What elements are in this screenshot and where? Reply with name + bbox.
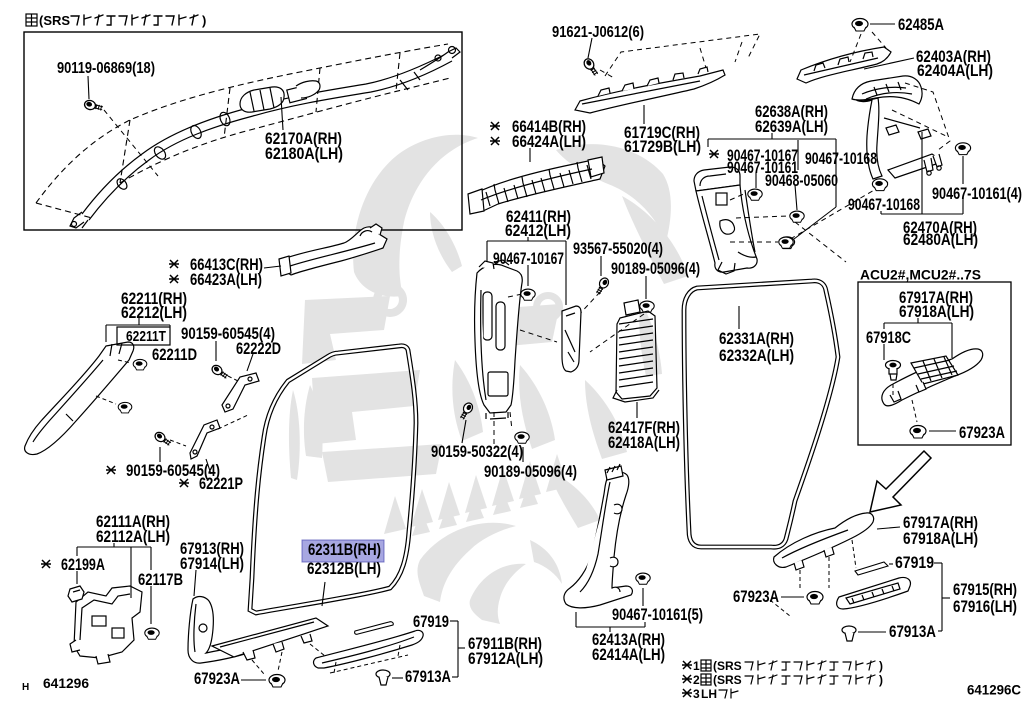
svg-text:(SRS: (SRS	[713, 659, 742, 673]
svg-text:67918C: 67918C	[866, 328, 911, 347]
svg-text:91621-J0612(6): 91621-J0612(6)	[552, 24, 644, 41]
svg-text:(SRS: (SRS	[713, 673, 742, 687]
svg-text:641296C: 641296C	[967, 682, 1021, 698]
svg-text:62404A(LH): 62404A(LH)	[917, 61, 993, 80]
svg-text:90467-10161(5): 90467-10161(5)	[612, 605, 703, 624]
svg-text:90159-50322(4): 90159-50322(4)	[431, 442, 523, 461]
svg-text:67919: 67919	[413, 612, 449, 631]
svg-text:62212(LH): 62212(LH)	[121, 303, 187, 322]
svg-text:90467-10168: 90467-10168	[805, 149, 877, 168]
svg-text:90189-05096(4): 90189-05096(4)	[611, 259, 700, 278]
svg-text:641296: 641296	[43, 676, 89, 691]
svg-text:67913A: 67913A	[405, 667, 451, 686]
svg-text:93567-55020(4): 93567-55020(4)	[573, 239, 663, 258]
svg-text:66424A(LH): 66424A(LH)	[512, 132, 586, 151]
svg-text:67923A: 67923A	[194, 669, 240, 688]
svg-text:67912A(LH): 67912A(LH)	[468, 649, 543, 668]
svg-text:90467-10167: 90467-10167	[493, 249, 564, 268]
svg-text:): )	[202, 13, 206, 28]
svg-text:62311B(RH): 62311B(RH)	[308, 540, 381, 559]
svg-text:62180A(LH): 62180A(LH)	[265, 144, 343, 163]
svg-text:67923A: 67923A	[959, 423, 1005, 442]
svg-text:67918A(LH): 67918A(LH)	[903, 529, 978, 548]
svg-text:90189-05096(4): 90189-05096(4)	[484, 462, 577, 481]
svg-text:67916(LH): 67916(LH)	[953, 597, 1017, 616]
svg-text:LH: LH	[701, 687, 717, 701]
svg-text:67919: 67919	[895, 553, 934, 572]
svg-text:90119-06869(18): 90119-06869(18)	[57, 60, 155, 77]
svg-text:H: H	[22, 682, 29, 693]
svg-text:90467-10168: 90467-10168	[848, 195, 920, 214]
svg-text:66423A(LH): 66423A(LH)	[190, 270, 262, 289]
svg-text:67913A: 67913A	[889, 622, 936, 641]
svg-text:62222D: 62222D	[236, 339, 281, 358]
svg-text:62480A(LH): 62480A(LH)	[903, 230, 978, 249]
svg-text:62639A(LH): 62639A(LH)	[755, 117, 828, 136]
svg-text:): )	[879, 673, 883, 687]
svg-text:62414A(LH): 62414A(LH)	[592, 645, 665, 664]
svg-text:67918A(LH): 67918A(LH)	[899, 302, 974, 321]
svg-text:62117B: 62117B	[138, 570, 183, 589]
svg-text:61729B(LH): 61729B(LH)	[624, 137, 701, 156]
svg-text:62112A(LH): 62112A(LH)	[96, 527, 170, 546]
svg-text:62332A(LH): 62332A(LH)	[719, 346, 794, 365]
svg-text:62211T: 62211T	[126, 328, 166, 345]
svg-text:1: 1	[693, 659, 700, 673]
svg-text:62211D: 62211D	[152, 345, 197, 364]
svg-text:3: 3	[693, 687, 700, 701]
svg-text:): )	[879, 659, 883, 673]
svg-text:62199A: 62199A	[61, 555, 105, 574]
svg-text:62312B(LH): 62312B(LH)	[307, 559, 381, 578]
svg-text:ACU2#,MCU2#..7S: ACU2#,MCU2#..7S	[860, 267, 981, 283]
svg-text:90468-05060: 90468-05060	[765, 171, 838, 190]
svg-text:62418A(LH): 62418A(LH)	[608, 433, 680, 452]
svg-text:90467-10161(4): 90467-10161(4)	[932, 184, 1022, 203]
svg-text:62412(LH): 62412(LH)	[505, 221, 571, 240]
svg-text:67914(LH): 67914(LH)	[180, 554, 244, 573]
svg-text:62221P: 62221P	[199, 474, 243, 493]
svg-text:(SRS: (SRS	[39, 13, 70, 28]
svg-text:62485A: 62485A	[898, 15, 944, 34]
svg-text:2: 2	[693, 673, 700, 687]
svg-text:67923A: 67923A	[733, 587, 779, 606]
